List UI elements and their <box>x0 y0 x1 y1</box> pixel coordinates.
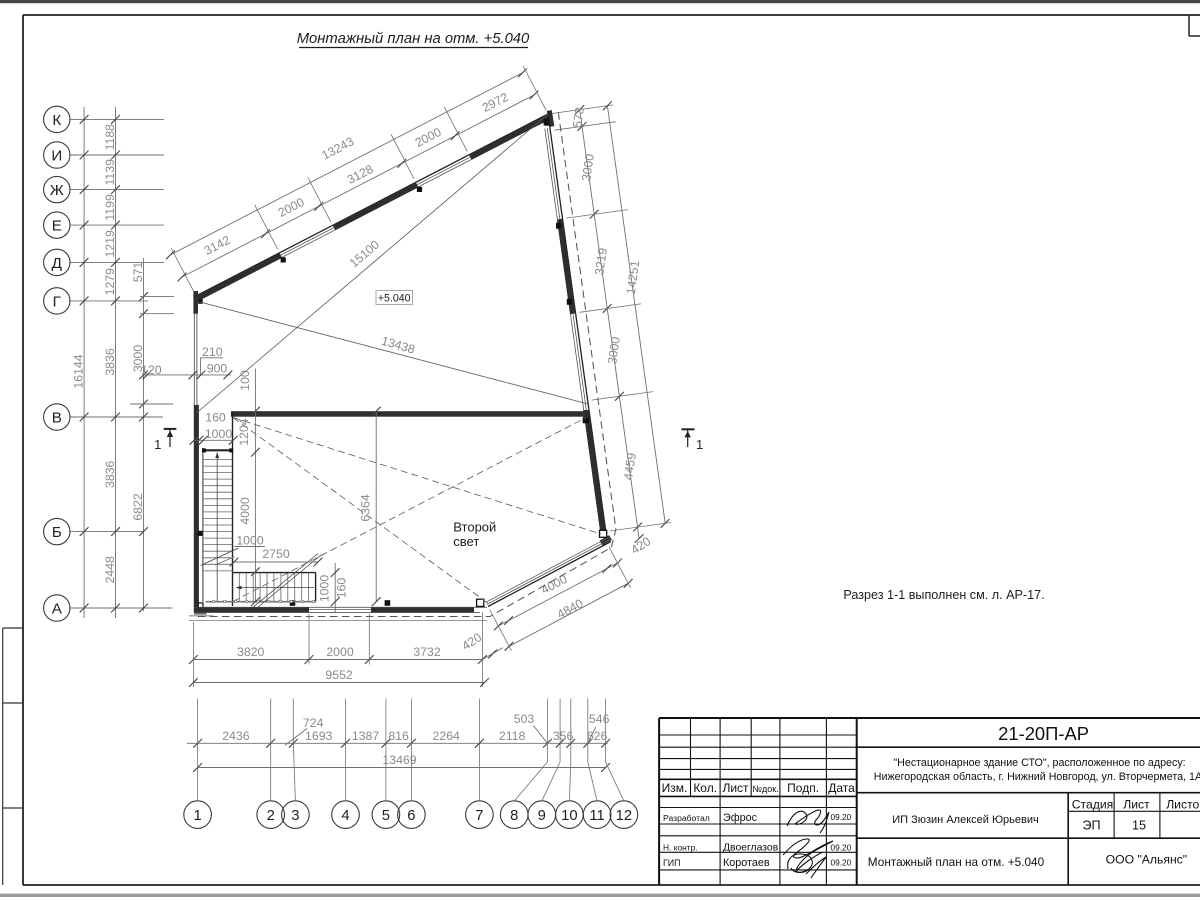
svg-text:09.20: 09.20 <box>831 858 852 868</box>
svg-text:09.20: 09.20 <box>831 842 852 852</box>
svg-text:Двоеглазов: Двоеглазов <box>723 843 779 854</box>
svg-text:Н. контр.: Н. контр. <box>663 842 698 852</box>
svg-text:10: 10 <box>561 808 577 824</box>
svg-text:Листов: Листов <box>1166 798 1200 812</box>
svg-text:11: 11 <box>589 808 604 824</box>
svg-text:1000: 1000 <box>318 575 332 603</box>
svg-text:Изм.: Изм. <box>662 781 688 795</box>
svg-text:160: 160 <box>335 578 349 599</box>
svg-text:ИП Зюзин Алексей Юрьевич: ИП Зюзин Алексей Юрьевич <box>892 814 1039 826</box>
svg-text:1000: 1000 <box>205 427 233 441</box>
svg-text:3820: 3820 <box>237 645 265 659</box>
svg-text:ЭП: ЭП <box>1082 819 1100 833</box>
svg-text:2264: 2264 <box>433 729 461 743</box>
svg-text:16144: 16144 <box>71 354 85 388</box>
svg-text:ООО "Альянс": ООО "Альянс" <box>1106 853 1188 867</box>
svg-text:1188: 1188 <box>103 124 117 151</box>
svg-text:503: 503 <box>514 712 535 726</box>
svg-text:1279: 1279 <box>103 268 117 296</box>
svg-text:Д: Д <box>52 255 62 272</box>
svg-text:21-20П-АР: 21-20П-АР <box>998 723 1089 744</box>
svg-text:1: 1 <box>154 437 161 452</box>
svg-text:3: 3 <box>291 808 299 824</box>
svg-text:2750: 2750 <box>262 547 290 561</box>
svg-text:15: 15 <box>1132 819 1146 833</box>
svg-text:Монтажный план на отм. +5.040: Монтажный план на отм. +5.040 <box>868 855 1045 869</box>
svg-text:Дата: Дата <box>828 781 855 795</box>
svg-text:546: 546 <box>589 712 610 726</box>
svg-text:4: 4 <box>341 808 349 824</box>
svg-text:Лист: Лист <box>1123 798 1150 812</box>
svg-text:9552: 9552 <box>325 668 353 682</box>
svg-text:№док.: №док. <box>752 784 778 794</box>
svg-text:Б: Б <box>52 524 62 541</box>
svg-text:Второй: Второй <box>453 519 496 534</box>
svg-text:+5.040: +5.040 <box>378 293 411 305</box>
svg-text:6: 6 <box>407 808 415 824</box>
svg-text:356: 356 <box>553 729 574 743</box>
svg-text:3836: 3836 <box>103 348 117 376</box>
svg-text:1387: 1387 <box>352 729 380 743</box>
svg-text:Лист: Лист <box>722 781 749 795</box>
svg-text:свет: свет <box>453 534 479 549</box>
svg-text:09.20: 09.20 <box>831 812 852 822</box>
svg-text:120: 120 <box>141 363 162 377</box>
svg-text:Кол.: Кол. <box>693 781 717 795</box>
svg-text:Разрез 1-1 выполнен см. л. АР-: Разрез 1-1 выполнен см. л. АР-17. <box>843 588 1044 602</box>
svg-text:3836: 3836 <box>103 460 117 488</box>
svg-text:6364: 6364 <box>358 494 372 522</box>
svg-text:Г: Г <box>53 293 61 310</box>
svg-text:2000: 2000 <box>326 645 354 659</box>
svg-text:2436: 2436 <box>222 729 250 743</box>
svg-text:2448: 2448 <box>103 556 117 584</box>
svg-text:И: И <box>51 147 62 164</box>
svg-text:9: 9 <box>538 808 546 824</box>
svg-text:8: 8 <box>510 808 518 824</box>
svg-text:2118: 2118 <box>499 729 526 743</box>
svg-text:1693: 1693 <box>305 729 333 743</box>
svg-text:2: 2 <box>267 808 275 824</box>
svg-text:4000: 4000 <box>238 497 252 525</box>
svg-text:Монтажный план на отм. +5.040: Монтажный план на отм. +5.040 <box>297 31 530 47</box>
svg-text:1: 1 <box>193 808 201 824</box>
svg-text:Нижегородская область, г. Нижн: Нижегородская область, г. Нижний Новгоро… <box>874 771 1200 783</box>
svg-text:К: К <box>52 112 61 129</box>
svg-text:Подп.: Подп. <box>787 781 819 795</box>
svg-text:7: 7 <box>475 808 483 824</box>
svg-text:Ж: Ж <box>50 182 64 199</box>
svg-text:Е: Е <box>52 218 62 235</box>
svg-text:6822: 6822 <box>131 493 145 521</box>
svg-text:В: В <box>52 409 62 426</box>
svg-text:12: 12 <box>616 808 632 824</box>
svg-text:1: 1 <box>696 437 703 452</box>
svg-text:571: 571 <box>131 262 145 283</box>
svg-text:100: 100 <box>238 370 252 391</box>
svg-text:724: 724 <box>303 716 324 730</box>
svg-text:"Нестационарное здание СТО", р: "Нестационарное здание СТО", расположенн… <box>893 757 1185 769</box>
svg-text:816: 816 <box>388 729 409 743</box>
svg-text:А: А <box>52 600 63 617</box>
svg-text:3732: 3732 <box>413 645 441 659</box>
svg-text:160: 160 <box>205 411 226 425</box>
svg-text:900: 900 <box>207 361 228 375</box>
svg-text:210: 210 <box>202 345 223 359</box>
svg-text:Стадия: Стадия <box>1072 798 1114 812</box>
svg-text:ГИП: ГИП <box>663 858 680 868</box>
svg-text:5: 5 <box>382 808 390 824</box>
svg-text:1000: 1000 <box>236 534 264 548</box>
svg-text:1204: 1204 <box>237 418 251 446</box>
svg-text:Разработал: Разработал <box>663 813 710 823</box>
svg-text:1199: 1199 <box>103 194 117 221</box>
svg-text:1139: 1139 <box>103 159 117 186</box>
svg-text:573: 573 <box>570 106 587 128</box>
svg-text:Эфрос: Эфрос <box>723 812 758 824</box>
svg-text:Коротаев: Коротаев <box>723 857 770 869</box>
svg-text:1219: 1219 <box>103 230 117 258</box>
svg-text:626: 626 <box>587 729 608 743</box>
